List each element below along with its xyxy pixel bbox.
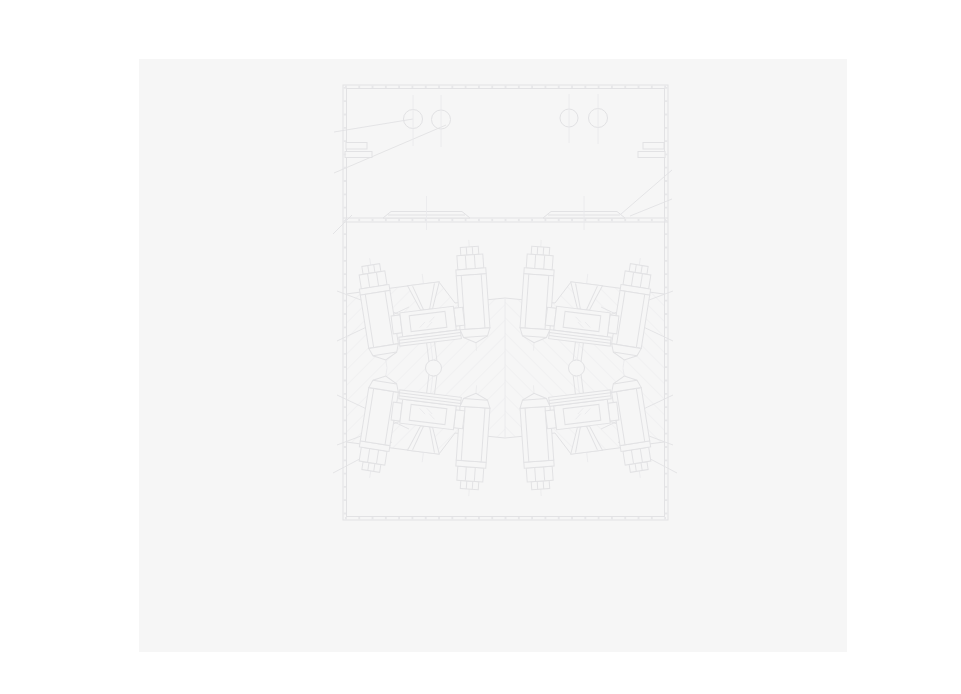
port-circles [404,94,608,147]
pivot-ball-right [569,360,585,376]
wall-tab-left-2 [345,152,372,158]
wall-tab-left-1 [346,143,367,150]
rail-plates [383,196,625,230]
wall-tab-right-2 [638,152,665,158]
page: { "theme": { "page": "#ffffff", "panel":… [0,0,961,694]
pivot-ball-left [426,360,442,376]
blueprint-svg [0,0,961,694]
wall-tab-right-1 [643,143,664,150]
